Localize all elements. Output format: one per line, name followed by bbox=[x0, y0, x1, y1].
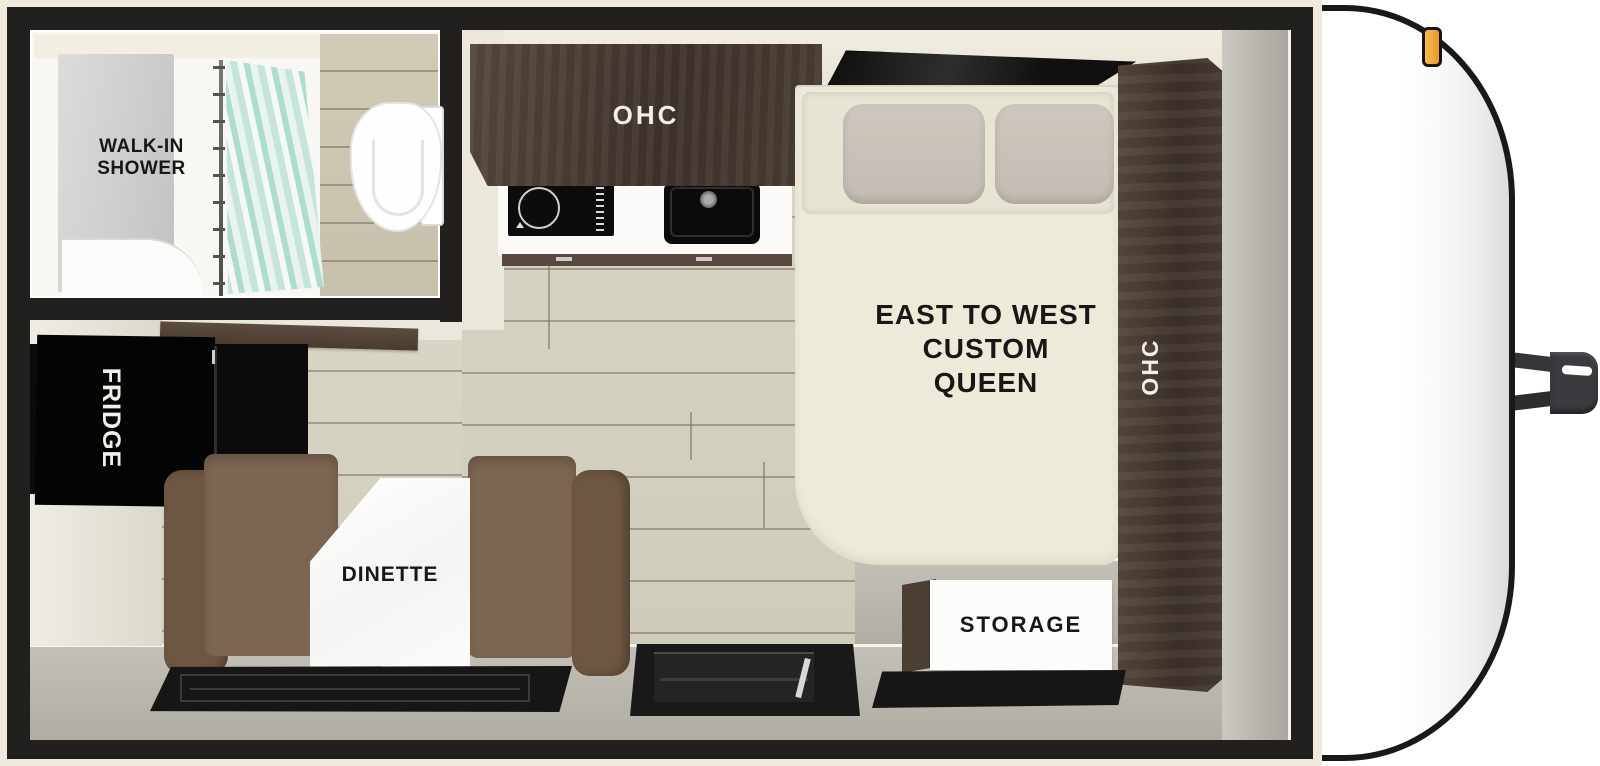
storage-label: STORAGE bbox=[960, 612, 1082, 638]
plank-joint bbox=[548, 265, 550, 349]
bathroom-label: WALK-IN SHOWER bbox=[64, 136, 219, 180]
bed-label-line2: CUSTOM bbox=[858, 332, 1114, 366]
wardrobe-ohc-label: OHC bbox=[1137, 267, 1167, 467]
bathroom-label-line1: WALK-IN bbox=[64, 136, 219, 158]
bathroom: WALK-IN SHOWER bbox=[30, 30, 440, 298]
fridge-door-highlight bbox=[212, 350, 215, 364]
wardrobe-cabinet bbox=[1118, 58, 1222, 692]
hitch-jack bbox=[1510, 350, 1600, 418]
pillow-left bbox=[843, 104, 985, 204]
floorplan-stage: WALK-IN SHOWER OHC EAST TO WEST CUSTOM Q… bbox=[0, 0, 1600, 766]
dinette-bench-right-back bbox=[572, 470, 630, 676]
toilet-seat-opening bbox=[372, 140, 424, 216]
flame-icon bbox=[516, 222, 524, 228]
bed-label-line3: QUEEN bbox=[858, 366, 1114, 400]
cooktop-controls bbox=[596, 187, 604, 231]
trailer-front-cap bbox=[1320, 5, 1515, 761]
cooktop bbox=[508, 182, 614, 236]
drawer-pull bbox=[556, 257, 572, 261]
right-interior-wall bbox=[1222, 30, 1291, 740]
shower-pan bbox=[62, 238, 204, 296]
bathroom-label-line2: SHOWER bbox=[64, 158, 219, 180]
marker-light-icon bbox=[1422, 27, 1442, 67]
kitchen-overhead-cabinet: OHC bbox=[470, 44, 822, 186]
kitchen-ohc-label: OHC bbox=[613, 100, 680, 131]
storage-floor-mat bbox=[872, 670, 1126, 708]
dinette-mat-stripe bbox=[190, 688, 520, 690]
pillow-right bbox=[995, 104, 1114, 204]
hitch-coupler bbox=[1550, 352, 1598, 414]
kitchen-counter-edge bbox=[502, 254, 792, 266]
drawer-pull bbox=[696, 257, 712, 261]
plank-joint bbox=[763, 462, 765, 528]
bed-label: EAST TO WEST CUSTOM QUEEN bbox=[858, 298, 1114, 400]
sink-drain-icon bbox=[700, 191, 717, 208]
plank-joint bbox=[690, 412, 692, 460]
bed-label-line1: EAST TO WEST bbox=[858, 298, 1114, 332]
bathroom-wall-bottom bbox=[7, 298, 462, 320]
dinette-bench-right-seat bbox=[468, 456, 576, 658]
dinette-label: DINETTE bbox=[316, 563, 464, 587]
entry-step-edge bbox=[660, 678, 808, 681]
entry-step-tread bbox=[654, 652, 814, 702]
shower-curtain bbox=[226, 60, 324, 294]
burner-ring-icon bbox=[518, 187, 560, 229]
kitchen-sink bbox=[664, 182, 760, 244]
fridge-label: FRIDGE bbox=[95, 318, 125, 518]
storage-box: STORAGE bbox=[930, 580, 1112, 670]
